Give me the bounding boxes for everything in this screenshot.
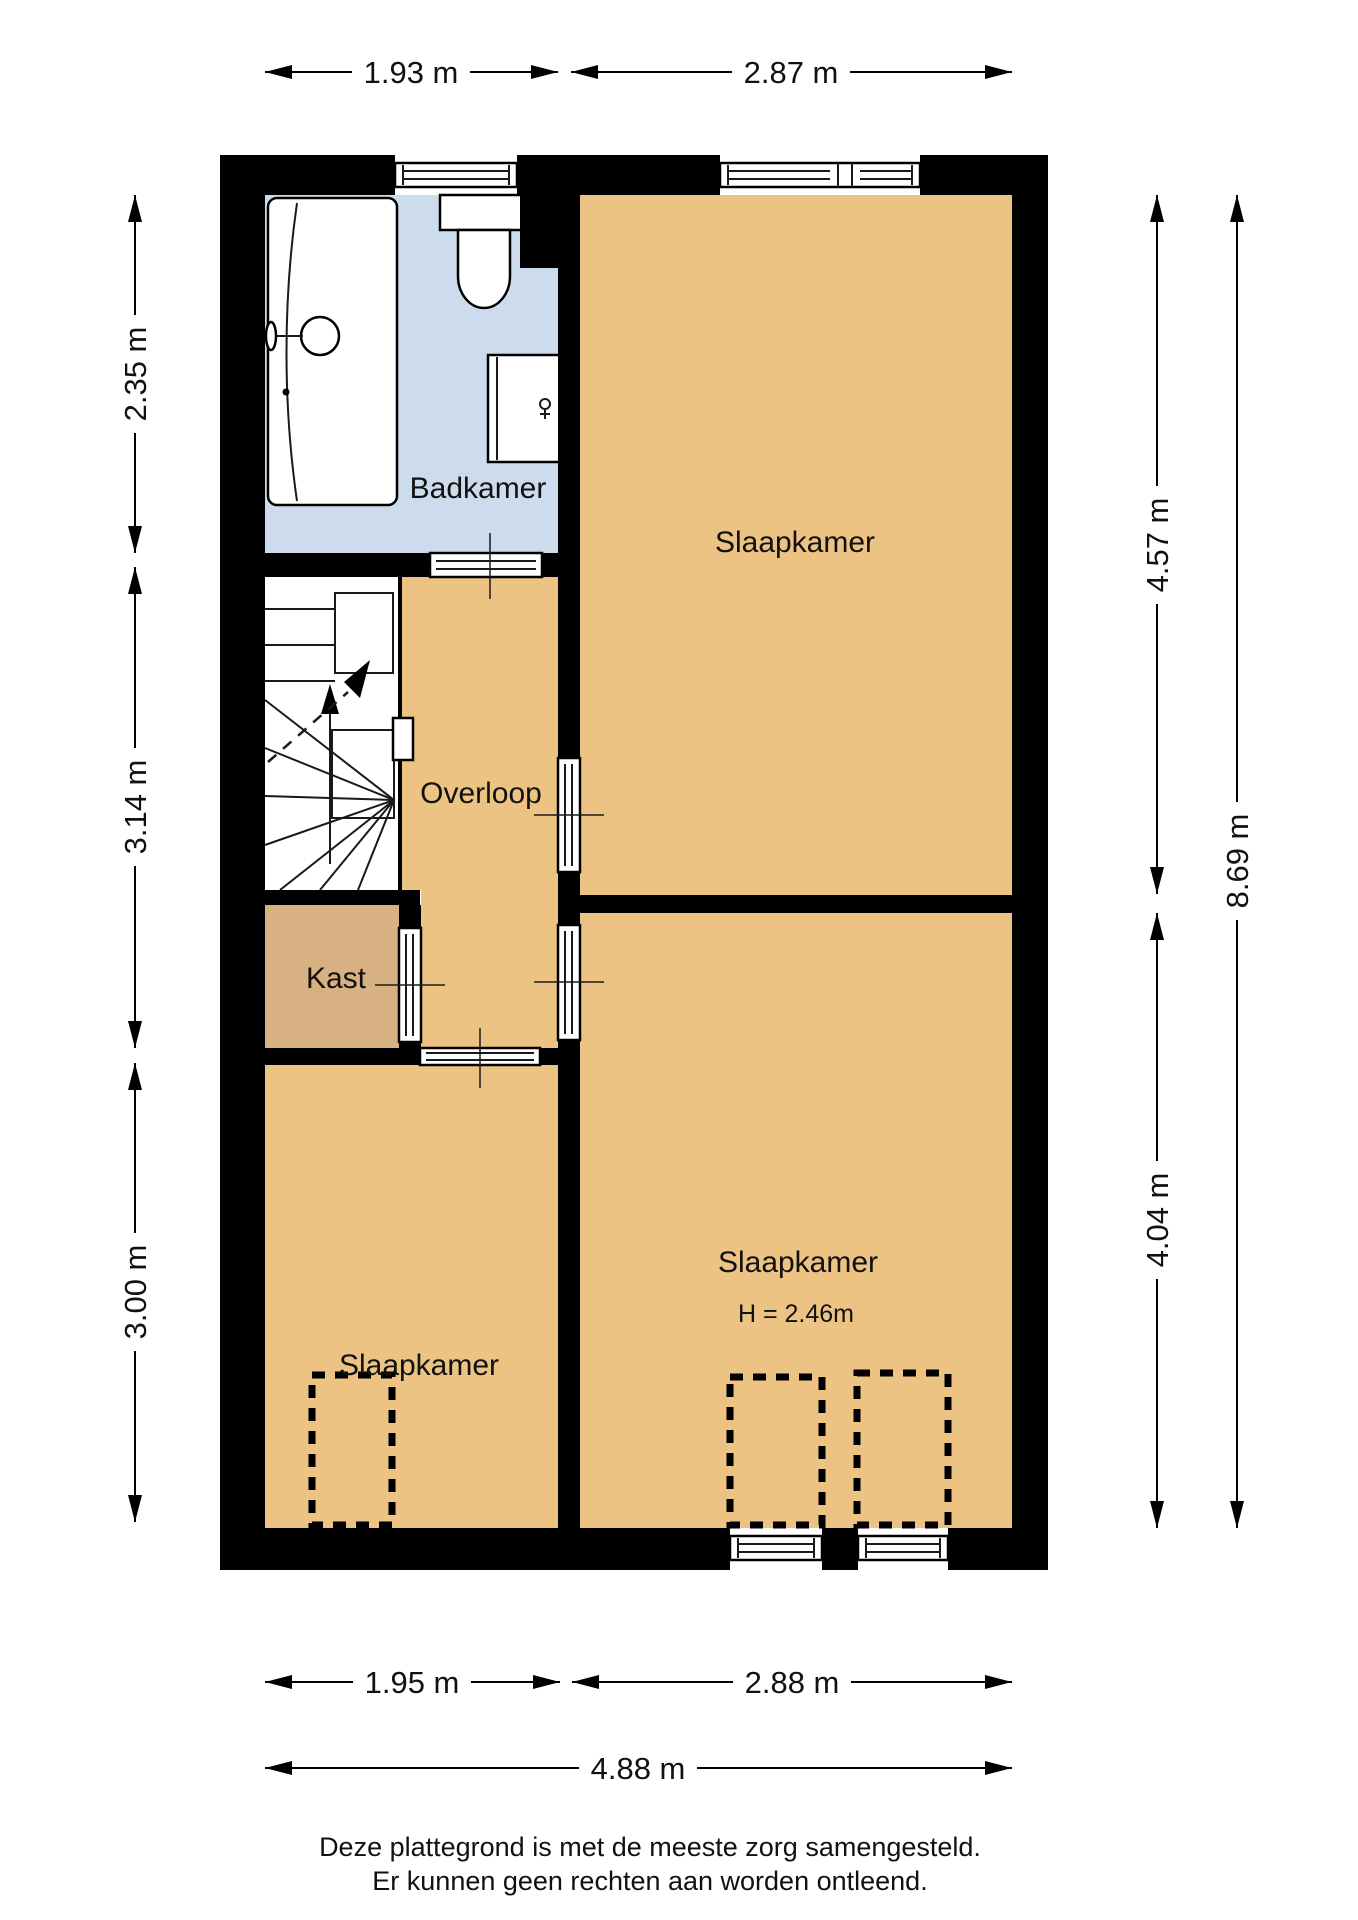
dimension-left: 2.35 m 3.14 m 3.00 m (113, 195, 157, 1522)
footer-line-1: Deze plattegrond is met de meeste zorg s… (319, 1832, 981, 1862)
slaapkamer-bottom-right-label: Slaapkamer (718, 1246, 878, 1279)
dimension-right: 4.57 m 4.04 m 8.69 m (1135, 195, 1259, 1528)
wall-center-divider-upper (558, 195, 580, 758)
wall-bedrooms-divider (558, 895, 1012, 913)
dim-right-outer: 8.69 m (1220, 814, 1255, 909)
window-badkamer-symbol (395, 163, 517, 187)
dim-top-1: 1.93 m (364, 55, 459, 90)
dim-top-2: 2.87 m (744, 55, 839, 90)
wall-kast-south (220, 1048, 420, 1065)
wall-kast-east-upper (399, 905, 421, 928)
floorplan-drawing: Badkamer Overloop Kast Slaapkamer Slaapk… (0, 0, 1358, 1920)
vanity-cabinet-symbol (488, 355, 562, 462)
footer-disclaimer: Deze plattegrond is met de meeste zorg s… (319, 1832, 981, 1896)
stair-door-leaf (393, 718, 413, 760)
wall-badkamer-south-left (265, 553, 430, 577)
dimension-bottom: 1.95 m 2.88 m 4.88 m (265, 1660, 1012, 1790)
dim-bottom-total: 4.88 m (591, 1751, 686, 1786)
kast-label: Kast (306, 962, 367, 995)
dim-left-1: 2.35 m (118, 327, 153, 422)
slaapkamer-bottom-left-label: Slaapkamer (339, 1349, 499, 1382)
overloop-label: Overloop (420, 777, 542, 810)
wall-overloop-south (540, 1048, 578, 1065)
wall-right (1012, 155, 1048, 1570)
badkamer-label: Badkamer (410, 472, 547, 505)
overloop-floor-lower (421, 890, 558, 1048)
wall-bottom-3 (948, 1528, 1048, 1570)
slaapkamer-top-label: Slaapkamer (715, 526, 875, 559)
wall-stairs-kast (265, 890, 420, 905)
overloop-floor-upper (402, 577, 558, 890)
slaapkamer-bottom-right-floor (580, 913, 1012, 1528)
window-bottom-right-symbol (858, 1536, 948, 1560)
dim-left-3: 3.00 m (118, 1245, 153, 1340)
ceiling-height-note: H = 2.46m (738, 1300, 854, 1328)
dim-right-inner-1: 4.57 m (1140, 498, 1175, 593)
dim-bottom-2: 2.88 m (745, 1665, 840, 1700)
wall-left (220, 155, 265, 1570)
window-slaapkamer-top-symbol (720, 163, 920, 187)
wall-top-2 (517, 155, 720, 195)
dim-bottom-1: 1.95 m (365, 1665, 460, 1700)
bathtub-symbol (266, 198, 397, 505)
wall-top-1 (220, 155, 395, 195)
dim-left-2: 3.14 m (118, 760, 153, 855)
wall-center-divider-lower (558, 1040, 580, 1528)
wall-bottom-1 (220, 1528, 730, 1570)
dimension-top: 1.93 m 2.87 m (265, 50, 1012, 94)
footer-line-2: Er kunnen geen rechten aan worden ontlee… (372, 1866, 927, 1896)
wall-stub-toilet (520, 195, 578, 268)
dim-right-inner-2: 4.04 m (1140, 1173, 1175, 1268)
floorplan-page: Badkamer Overloop Kast Slaapkamer Slaapk… (0, 0, 1358, 1920)
wall-bottom-2 (822, 1528, 858, 1570)
window-bottom-left-symbol (730, 1536, 822, 1560)
